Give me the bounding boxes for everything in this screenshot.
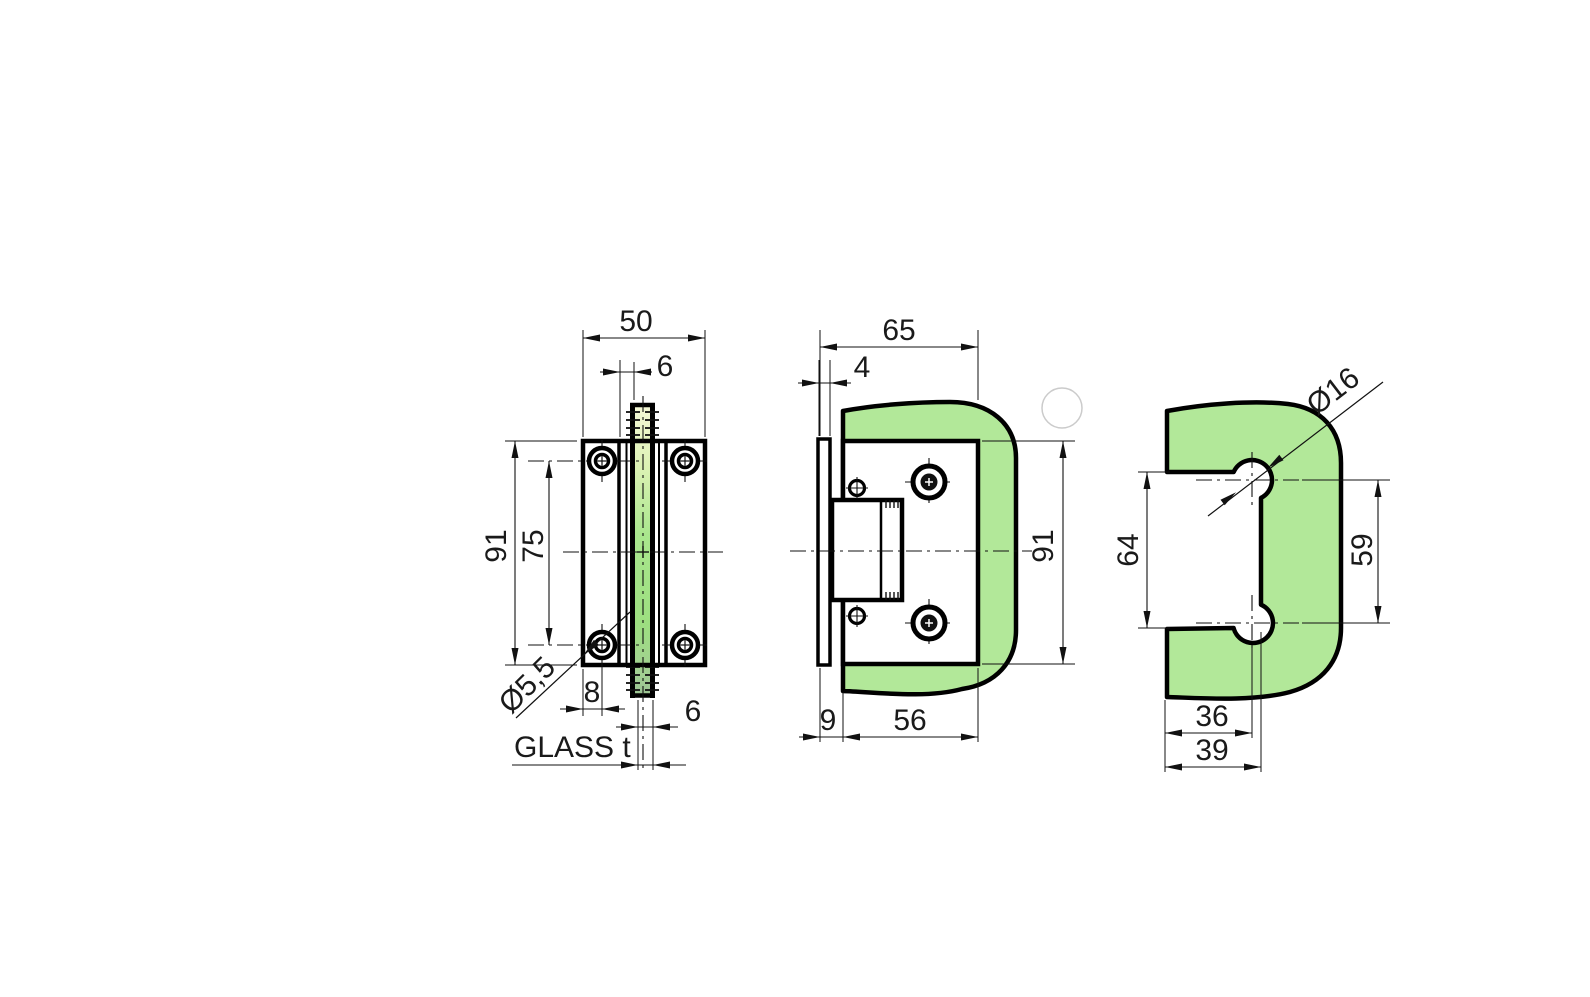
- svg-text:6: 6: [685, 695, 702, 728]
- svg-text:6: 6: [657, 350, 674, 383]
- hinge-knuckle: [832, 500, 902, 600]
- svg-text:GLASS t: GLASS t: [514, 731, 631, 764]
- dim-front-glass-thickness: GLASS t: [512, 731, 686, 769]
- side-view: 65 4 91 9: [790, 314, 1075, 742]
- wall-plate: [818, 439, 830, 665]
- dim-front-hole-spacing: 75: [517, 461, 553, 645]
- dim-cutout-notch-height: 64: [1112, 472, 1170, 628]
- technical-drawing: 50 6 91 75: [0, 0, 1590, 997]
- svg-text:91: 91: [1027, 529, 1060, 562]
- glass-cutout-panel: [1167, 402, 1341, 698]
- drawing-canvas: 50 6 91 75: [0, 0, 1590, 997]
- svg-text:8: 8: [584, 676, 601, 709]
- svg-text:91: 91: [480, 529, 513, 562]
- front-view: 50 6 91 75: [480, 305, 723, 772]
- svg-text:59: 59: [1346, 533, 1379, 566]
- svg-text:50: 50: [619, 305, 652, 338]
- svg-text:56: 56: [893, 704, 926, 737]
- svg-text:9: 9: [820, 704, 837, 737]
- svg-text:39: 39: [1195, 734, 1228, 767]
- screw-icon: [672, 624, 698, 666]
- svg-text:75: 75: [517, 529, 550, 562]
- dim-side-glass-offset: 9: [799, 668, 843, 742]
- svg-text:65: 65: [882, 314, 915, 347]
- glass-cutout-view: Ø16 64 59 36: [1112, 361, 1390, 772]
- screw-icon: [589, 440, 615, 482]
- dim-cutout-hole-spacing: 59: [1346, 480, 1382, 623]
- svg-text:64: 64: [1112, 533, 1145, 566]
- watermark-circle: [1042, 388, 1082, 428]
- screw-icon: [672, 440, 698, 482]
- svg-text:36: 36: [1195, 700, 1228, 733]
- svg-text:4: 4: [854, 351, 871, 384]
